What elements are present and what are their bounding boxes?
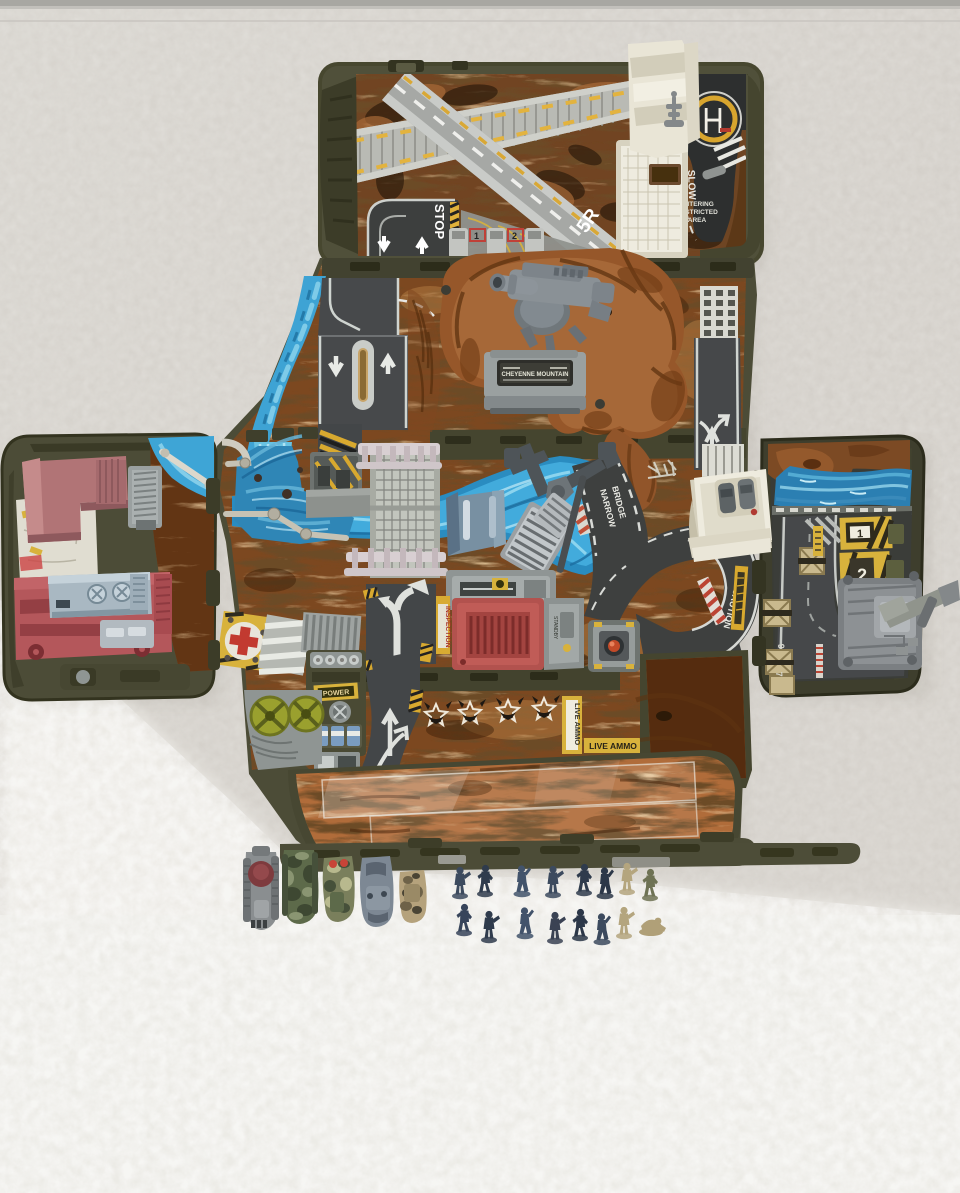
svg-text:1: 1 <box>857 528 864 540</box>
svg-text:H: H <box>702 100 723 140</box>
svg-text:7: 7 <box>774 671 784 677</box>
svg-text:2: 2 <box>512 231 517 241</box>
svg-text:STOP: STOP <box>432 204 447 239</box>
svg-text:CHEYENNE MOUNTAIN: CHEYENNE MOUNTAIN <box>502 372 569 378</box>
svg-text:LIVE AMMO: LIVE AMMO <box>589 741 637 751</box>
svg-text:1: 1 <box>474 231 479 241</box>
svg-text:9: 9 <box>776 643 786 649</box>
svg-text:STANDBY: STANDBY <box>552 616 558 640</box>
svg-text:AREA: AREA <box>688 217 707 224</box>
svg-text:INSPECTION: INSPECTION <box>444 606 451 648</box>
svg-text:LIVE AMMO: LIVE AMMO <box>573 703 582 745</box>
